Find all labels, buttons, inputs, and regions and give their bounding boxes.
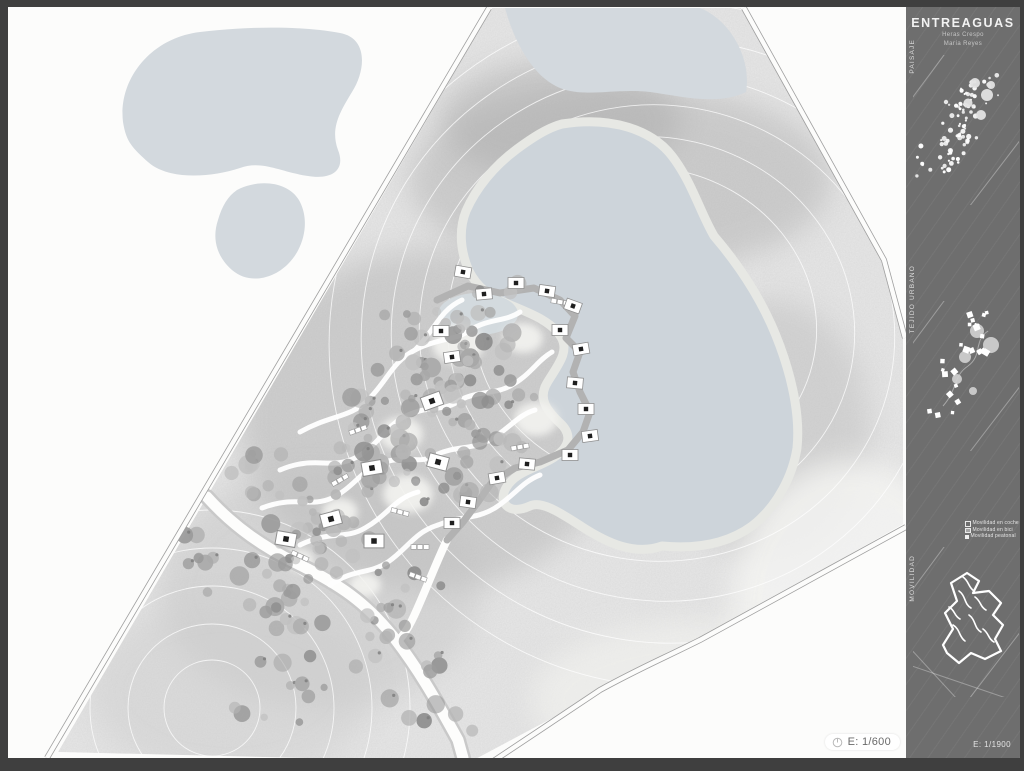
main-plan-canvas: E: 1/600: [8, 7, 906, 758]
legend-label-pedestrian: Movilidad peatonal: [971, 534, 1016, 540]
project-subtitle-1: Heras Crespo: [906, 32, 1020, 39]
project-subtitle-2: María Reyes: [906, 41, 1020, 48]
main-plan-svg: [8, 7, 906, 758]
main-scale-badge: E: 1/600: [825, 734, 900, 750]
masterplan-sheet: E: 1/600 ENTREAGUAS Heras Crespo María R…: [0, 0, 1024, 771]
title-block: ENTREAGUAS Heras Crespo María Reyes: [906, 16, 1020, 48]
main-scale-label: E: 1/600: [848, 736, 891, 748]
blob-upper-left: [122, 28, 361, 177]
project-title: ENTREAGUAS: [906, 16, 1020, 30]
legend-row: Movilidad peatonal: [965, 534, 1015, 540]
legend-swatch-car: [965, 521, 971, 527]
mobility-legend: Movilidad en coche Movilidad en bici Mov…: [965, 521, 1015, 541]
minimap-movilidad: [913, 547, 1019, 697]
legend-row: Movilidad en coche: [965, 521, 1015, 527]
sidebar: ENTREAGUAS Heras Crespo María Reyes PAIS…: [906, 7, 1020, 758]
minimap-tejido-urbano: [913, 301, 1019, 451]
sidebar-scale-label: E: 1/1900: [973, 740, 1011, 749]
minimap-paisaje: [913, 55, 1019, 205]
legend-swatch-pedestrian: [965, 535, 969, 539]
legend-label-car: Movilidad en coche: [973, 521, 1019, 527]
legend-swatch-bike: [965, 528, 971, 534]
north-arrow-icon: [832, 737, 843, 748]
